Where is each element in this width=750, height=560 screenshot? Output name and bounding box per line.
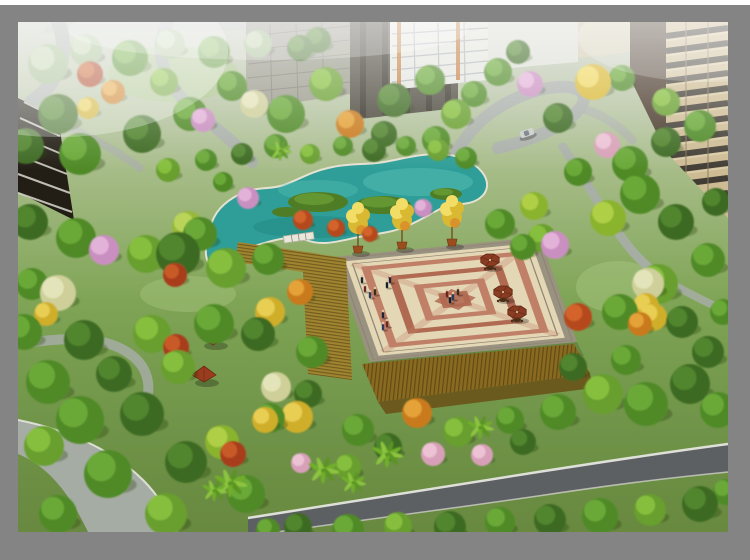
atmospheric-haze [18,22,728,172]
scene-canvas [18,22,728,532]
page: { "frame": { "background": "#ffffff", "m… [0,0,750,560]
garden-aerial-rendering [18,22,728,532]
